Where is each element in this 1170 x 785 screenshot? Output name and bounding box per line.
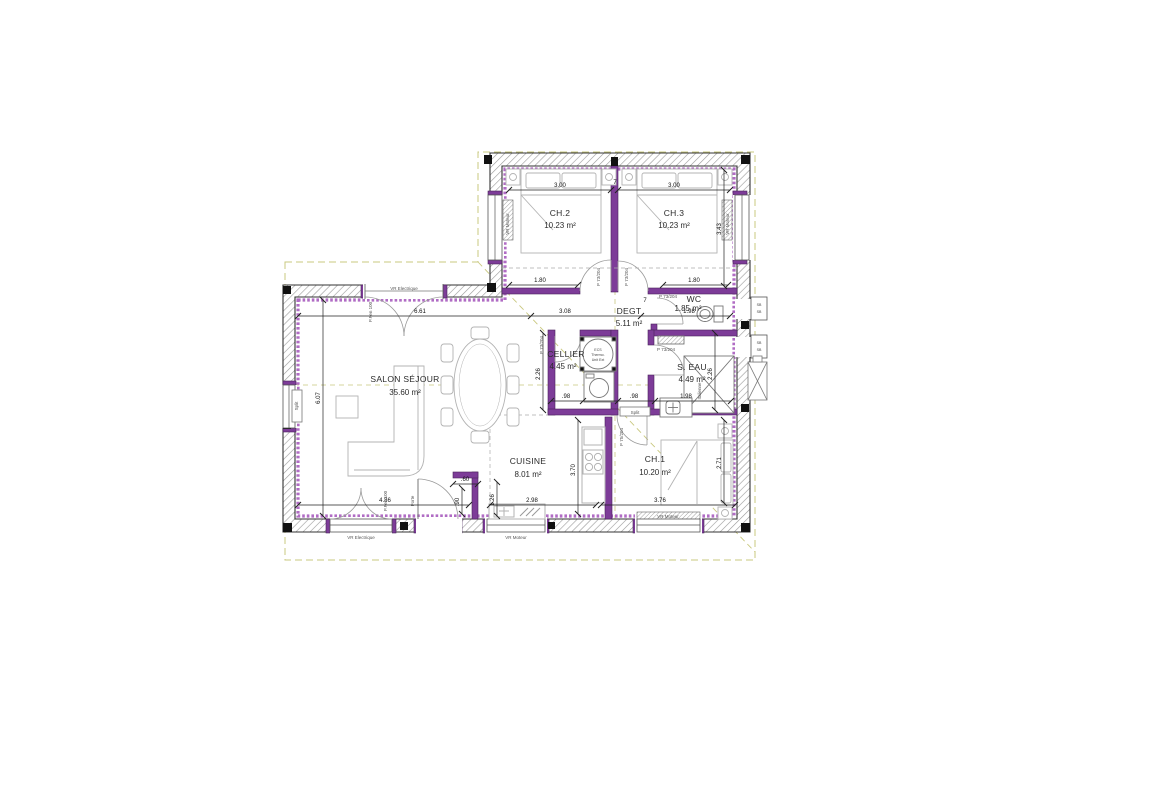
dining-table <box>441 327 519 443</box>
wall-cellier-north <box>580 330 611 336</box>
dim-ch3-height: 3.43 <box>717 223 723 235</box>
room-area-salon: 35.60 m² <box>389 388 421 397</box>
door-label-ch2: P 73/204 <box>596 268 601 286</box>
door-label-seau: P 73/204 <box>657 347 675 352</box>
window-label-ch1: VR Moteur <box>657 514 679 519</box>
dim-corridor-width: .98 <box>630 394 639 400</box>
room-name-wc: WC <box>687 294 702 304</box>
wall-bedrooms-south-left <box>502 288 580 294</box>
wall-wc-seau <box>651 330 737 336</box>
wall-ch1-west <box>605 417 612 519</box>
dim-wall-7b: 7 <box>643 298 647 304</box>
dim-ch2-width: 3.00 <box>554 183 566 189</box>
dim-stub-height: .90 <box>455 497 461 506</box>
split-label-salon: Split <box>294 401 299 411</box>
room-name-seau: S. EAU <box>677 362 707 372</box>
entry-door-label: Porte <box>410 495 415 506</box>
vent-label-1a: SB <box>757 303 762 307</box>
vent-label-2b: SB <box>757 348 762 352</box>
room-name-cellier: CELLIER <box>547 349 585 359</box>
vent-label-2a: SB <box>757 341 762 345</box>
pfen-label-bottom: P.Fen 100 <box>383 490 388 511</box>
room-area-degt: 5.11 m² <box>616 319 643 328</box>
room-area-ch3: 10.23 m² <box>658 221 690 230</box>
room-name-ch1: CH.1 <box>645 454 666 464</box>
dim-salon-width: 6.61 <box>414 309 426 315</box>
door-label-ch3: P 73/204 <box>624 268 629 286</box>
ecs-label-3: Unit Ext <box>592 358 605 362</box>
dim-stub-width: .60 <box>461 477 470 483</box>
wall-kitchen-stub-v <box>472 472 478 519</box>
dim-ch1-width: 3.76 <box>654 498 666 504</box>
room-area-wc: 1.85 m² <box>674 304 701 313</box>
dim-ch3-width: 3.00 <box>668 183 680 189</box>
pfen-label-top: P.Fen 100 <box>368 301 373 322</box>
ecs-label-1: ECS <box>594 348 602 352</box>
room-name-cuisine: CUISINE <box>510 456 547 466</box>
dim-ch3-door: 1.80 <box>688 278 700 284</box>
door-label-wc: P 73/204 <box>659 294 677 299</box>
dim-kitchen-height: 3.70 <box>571 464 577 476</box>
furniture <box>292 169 767 519</box>
dim-salon-height: 6.07 <box>316 392 322 404</box>
room-area-cuisine: 8.01 m² <box>514 470 541 479</box>
window-label-ch3: VR Moteur <box>725 213 730 235</box>
cellier-equipment <box>580 337 616 402</box>
dim-kitchen-bottom: 2.98 <box>526 498 538 504</box>
room-name-degt: DEGT <box>617 306 642 316</box>
room-area-ch1: 10.20 m² <box>639 468 671 477</box>
room-area-cellier: 4.45 m² <box>549 362 576 371</box>
floor-plan: 3.00 3.00 3.43 1.80 1.80 6.61 3.08 1.98 … <box>0 0 1170 785</box>
room-area-ch2: 10.23 m² <box>544 221 576 230</box>
wall-seau-west-a <box>648 330 654 345</box>
dim-seau-width: 1.98 <box>680 394 692 400</box>
door-label-cellier: P 73/204 <box>539 336 544 354</box>
window-label-bottom-left: VR Electrique <box>347 535 375 540</box>
coffee-table <box>336 396 358 418</box>
door-label-salon-top: VR Electrique <box>390 286 418 291</box>
room-name-ch3: CH.3 <box>664 208 685 218</box>
ecs-label-2: Thermo. <box>591 353 604 357</box>
dim-entry: 1.26 <box>490 494 496 506</box>
dim-cellier-width: .98 <box>562 394 571 400</box>
room-name-ch2: CH.2 <box>550 208 571 218</box>
room-name-salon: SALON SÉJOUR <box>370 374 439 384</box>
wall-cellier-south <box>548 409 618 415</box>
towel-radiator <box>658 336 684 344</box>
dim-seau-height: 2.26 <box>708 368 714 380</box>
window-label-kitchen: VR Moteur <box>505 535 527 540</box>
door-label-ch1: P 75/204 <box>619 428 624 446</box>
window-label-ch2: VR Moteur <box>505 213 510 235</box>
dim-ch1-height: 2.71 <box>717 457 723 469</box>
split-label-kitchen: Split <box>631 410 641 415</box>
shower-label: Italienne <box>697 382 702 400</box>
dim-ch2-door: 1.80 <box>534 278 546 284</box>
dim-degt-width: 3.08 <box>559 309 571 315</box>
dim-cellier-height: 2.26 <box>536 368 542 380</box>
vent-label-1b: SB <box>757 310 762 314</box>
